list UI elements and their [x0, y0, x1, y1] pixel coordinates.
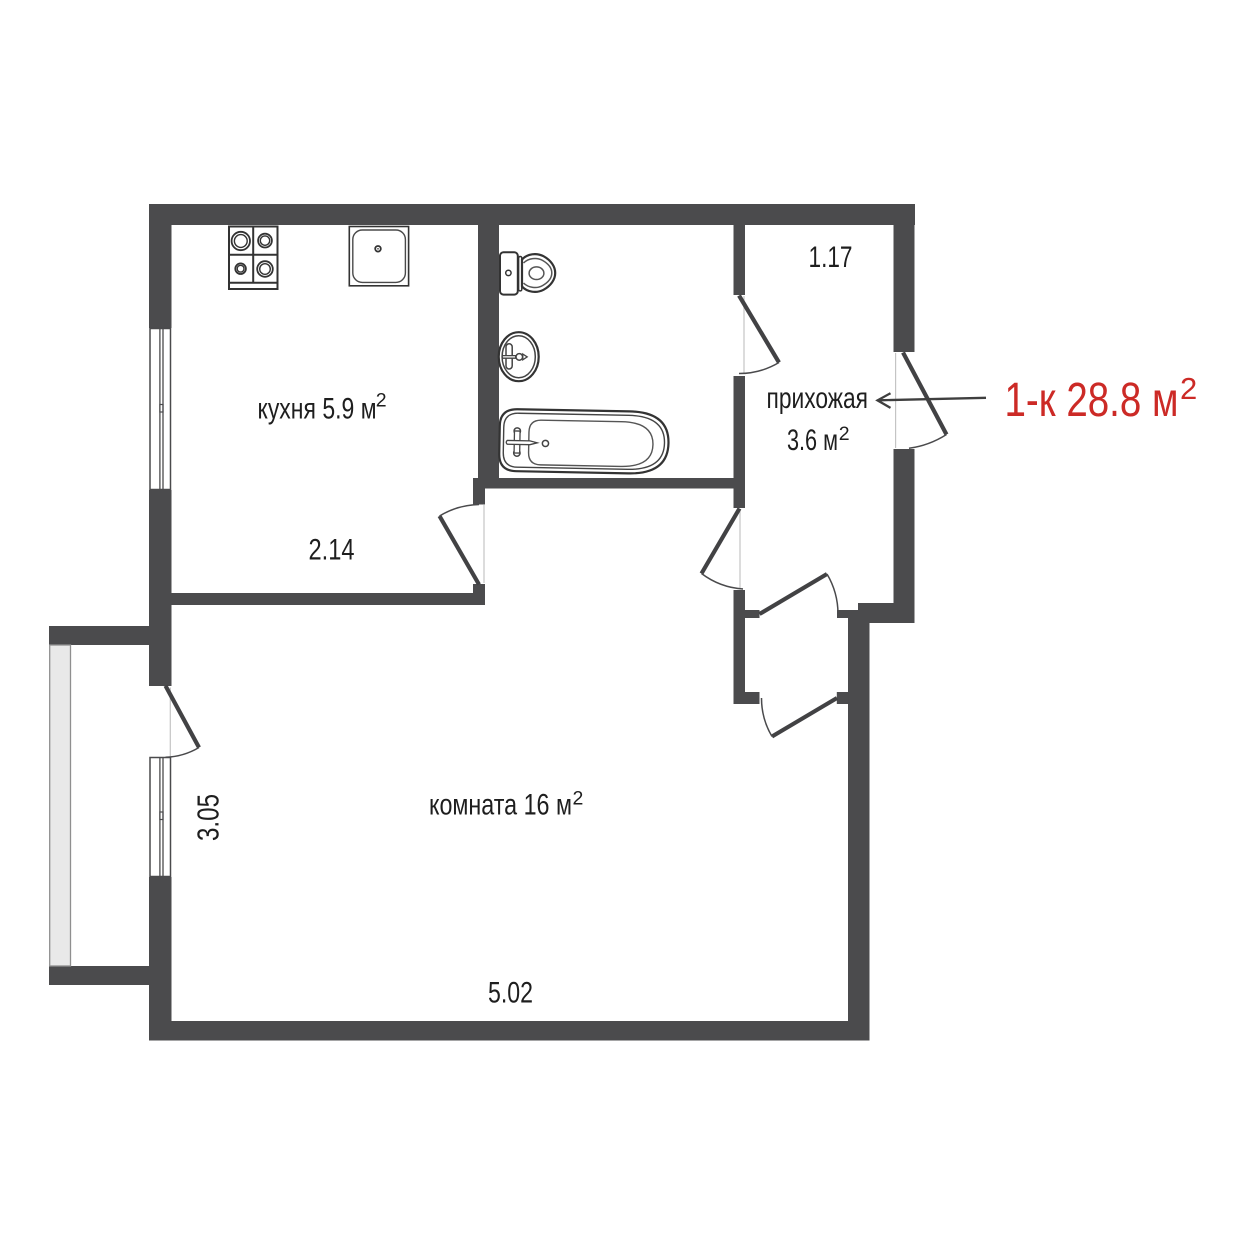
svg-text:3.05: 3.05	[191, 794, 226, 841]
svg-text:2: 2	[839, 423, 850, 445]
svg-text:2: 2	[376, 390, 387, 412]
svg-text:2: 2	[573, 788, 584, 810]
svg-text:комната 16 м: комната 16 м	[429, 788, 572, 821]
svg-text:2: 2	[1180, 371, 1197, 406]
svg-text:3.6 м: 3.6 м	[787, 424, 838, 457]
svg-text:1.17: 1.17	[809, 241, 853, 274]
svg-text:2.14: 2.14	[309, 534, 355, 567]
svg-text:5.02: 5.02	[488, 977, 533, 1010]
svg-text:1-к 28.8 м: 1-к 28.8 м	[1005, 374, 1179, 427]
svg-text:прихожая: прихожая	[767, 382, 869, 415]
svg-text:кухня 5.9 м: кухня 5.9 м	[258, 393, 377, 426]
